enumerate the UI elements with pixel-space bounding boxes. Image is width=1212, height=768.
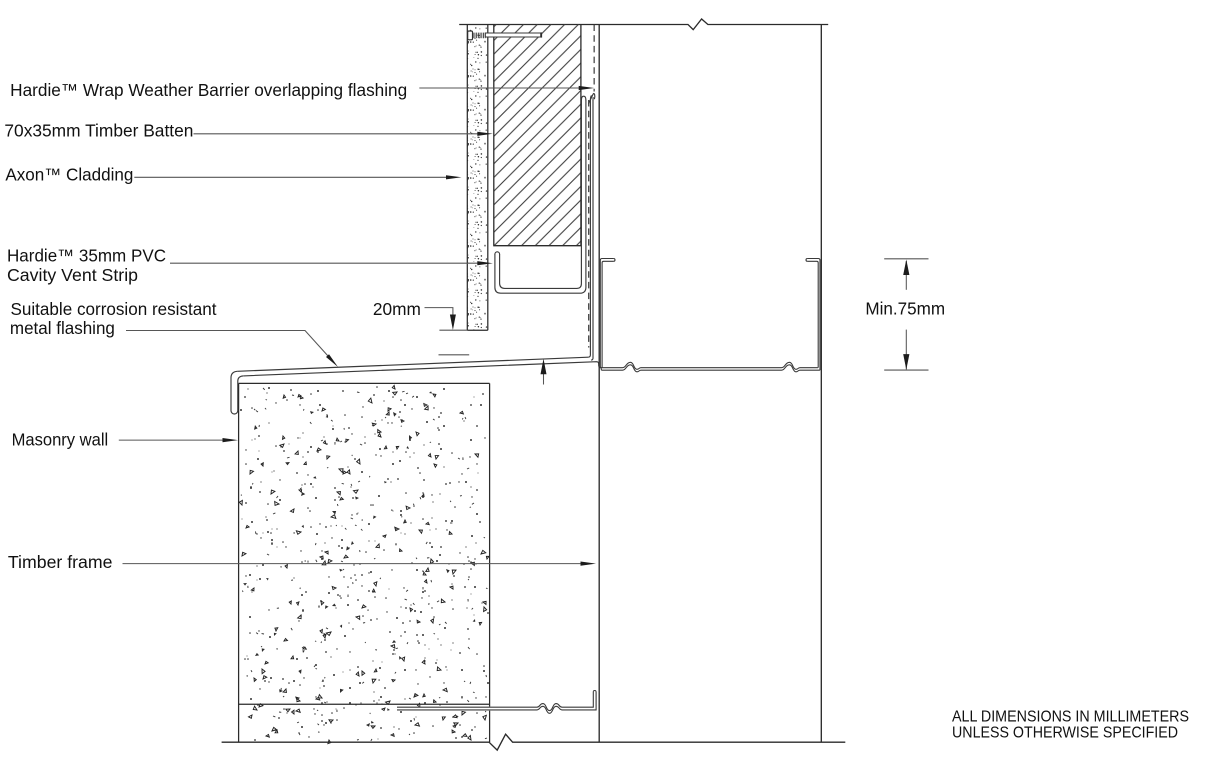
svg-text:Timber frame: Timber frame xyxy=(8,552,113,572)
svg-text:Min.75mm: Min.75mm xyxy=(865,299,945,319)
svg-text:metal flashing: metal flashing xyxy=(10,318,115,338)
svg-text:Masonry wall: Masonry wall xyxy=(12,430,109,450)
svg-text:70x35mm Timber Batten: 70x35mm Timber Batten xyxy=(4,120,193,140)
svg-text:ALL DIMENSIONS IN MILLIMETERS: ALL DIMENSIONS IN MILLIMETERS xyxy=(952,709,1189,726)
svg-text:Cavity Vent Strip: Cavity Vent Strip xyxy=(7,265,138,285)
svg-text:Suitable corrosion resistant: Suitable corrosion resistant xyxy=(11,299,217,319)
svg-text:Hardie™ Wrap Weather Barrier o: Hardie™ Wrap Weather Barrier overlapping… xyxy=(10,80,407,100)
svg-text:Hardie™ 35mm PVC: Hardie™ 35mm PVC xyxy=(7,246,166,266)
svg-text:Axon™ Cladding: Axon™ Cladding xyxy=(5,165,133,185)
svg-text:20mm: 20mm xyxy=(373,299,421,319)
svg-text:UNLESS OTHERWISE SPECIFIED: UNLESS OTHERWISE SPECIFIED xyxy=(952,724,1178,741)
